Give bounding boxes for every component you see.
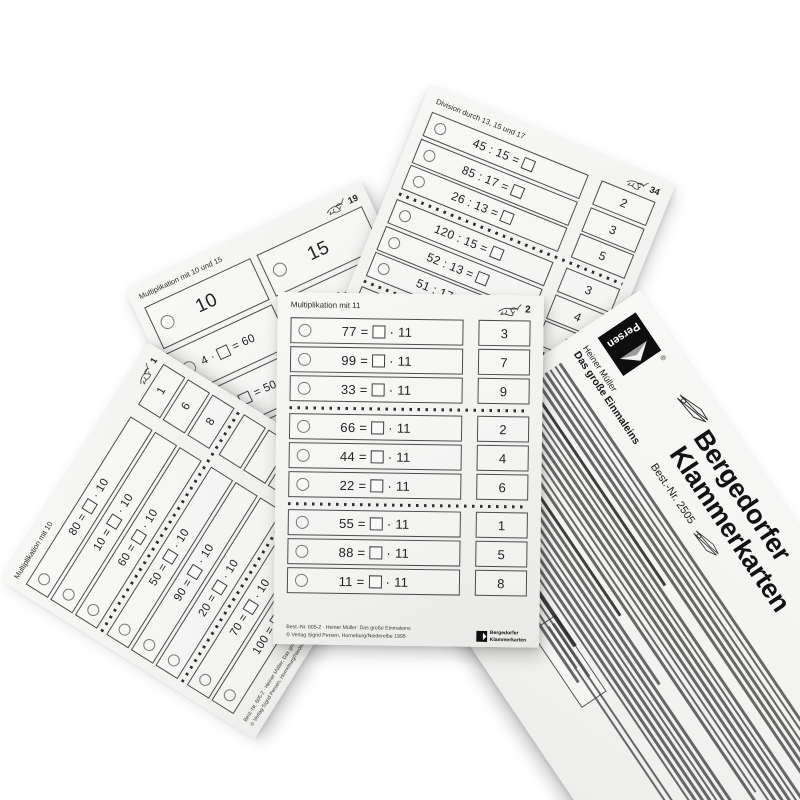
answer-box-blank xyxy=(369,575,382,588)
problem-cell: 44 =· 11 xyxy=(289,442,462,470)
card-row: 99 =· 117 xyxy=(290,346,530,375)
clip-hole-circle xyxy=(297,420,310,433)
problem-text: 10 xyxy=(192,289,221,318)
answer-box-blank xyxy=(216,344,232,360)
problem-text: · 11 xyxy=(386,545,409,560)
problem-text: 88 = xyxy=(339,544,366,559)
answer-box-blank xyxy=(521,157,537,173)
problem-text: 15 xyxy=(304,237,333,266)
problem-text: · 11 xyxy=(385,574,408,589)
answer-box-blank xyxy=(162,548,179,565)
answer-value: 9 xyxy=(500,384,508,399)
answer-box-blank xyxy=(211,579,228,596)
clip-hole-circle xyxy=(296,478,309,491)
problem-text: · 10 xyxy=(171,527,192,551)
answer-box-blank xyxy=(371,450,384,463)
clip-hole-circle xyxy=(166,652,183,669)
problem-text: 11 = xyxy=(339,573,365,588)
problem-text: · 11 xyxy=(389,353,412,368)
problem-text: 70 = xyxy=(228,612,251,639)
clip-hole-circle xyxy=(298,353,311,366)
card-number: 34 xyxy=(648,184,661,197)
card-multiplikation-mit-11: Multiplikation mit 11 2 77 =· 11399 =· 1… xyxy=(273,292,544,648)
problem-text: · 11 xyxy=(389,382,412,397)
problem-text: 33 = xyxy=(341,381,368,396)
card-footer: Best.-Nr. 605-2 · Heiner Müller: Das gro… xyxy=(286,625,526,644)
clip-hole-circle xyxy=(85,602,102,619)
answer-value: 5 xyxy=(497,547,505,562)
row-group: 55 =· 11188 =· 11511 =· 118 xyxy=(287,509,528,596)
card-row: 55 =· 111 xyxy=(288,509,528,538)
answer-box-blank xyxy=(369,546,382,559)
problem-text: 66 = xyxy=(340,419,367,434)
answer-value: 7 xyxy=(500,355,508,370)
brand-line2: Klammerkarten xyxy=(490,636,526,643)
problem-text: · 10 xyxy=(115,492,136,516)
card-title: Multiplikation mit 11 xyxy=(291,300,361,310)
clip-hole-circle xyxy=(296,516,309,529)
row-group: 66 =· 11244 =· 11422 =· 116 xyxy=(288,413,529,500)
answer-cell: 8 xyxy=(475,570,527,597)
answer-value: 3 xyxy=(583,283,595,299)
card-row: 11 =· 118 xyxy=(287,567,527,596)
problem-text: · 11 xyxy=(388,449,411,464)
clip-hole-circle xyxy=(60,586,77,603)
problem-text: · 10 xyxy=(139,507,160,531)
answer-box-blank xyxy=(371,421,384,434)
answer-value: 6 xyxy=(498,480,506,495)
answer-box-blank xyxy=(82,498,99,515)
answer-value: 3 xyxy=(501,326,509,341)
dotted-separator xyxy=(289,406,529,412)
card-header: Multiplikation mit 11 2 xyxy=(278,292,544,321)
card-number: 19 xyxy=(346,193,359,206)
clip-hole-circle xyxy=(297,449,310,462)
clip-hole-circle xyxy=(295,574,308,587)
problem-text: 22 = xyxy=(339,477,366,492)
problem-text: 80 = xyxy=(67,511,90,538)
answer-cell: 3 xyxy=(478,320,530,347)
clip-hole-circle xyxy=(298,324,311,337)
problem-text: 10 = xyxy=(91,527,114,554)
answer-cell: 1 xyxy=(476,512,528,539)
problem-text: 50 = xyxy=(147,562,170,589)
clip-hole-circle xyxy=(36,571,53,588)
footer-imprint-line2: © Verlag Sigrid Persen, Horneburg/Nieder… xyxy=(286,632,410,642)
clip-hole-circle xyxy=(158,313,177,332)
grasshopper-logo-icon xyxy=(496,303,522,316)
clip-hole-circle xyxy=(141,637,158,654)
answer-box-blank xyxy=(500,210,516,226)
answer-value: 1 xyxy=(155,385,169,397)
answer-cell: 2 xyxy=(477,416,529,443)
clip-hole-circle xyxy=(422,148,438,164)
answer-box-blank xyxy=(372,383,385,396)
answer-value: 4 xyxy=(572,309,584,325)
card-row: 44 =· 114 xyxy=(289,442,529,471)
card-row: 88 =· 115 xyxy=(287,538,527,567)
answer-value: 2 xyxy=(499,422,507,437)
problem-text: · 10 xyxy=(195,542,216,566)
problem-text: · 10 xyxy=(220,558,241,582)
clip-hole-circle xyxy=(411,174,427,190)
problem-text: 77 = xyxy=(342,323,369,338)
answer-cell: 6 xyxy=(476,474,528,501)
problem-text: · 11 xyxy=(389,324,412,339)
problem-text: 20 = xyxy=(197,592,220,619)
card-row: 77 =· 113 xyxy=(290,317,530,346)
clip-hole-circle xyxy=(222,687,239,704)
card-row: 66 =· 112 xyxy=(289,413,529,442)
problem-text: 90 = xyxy=(172,577,195,604)
problem-text: · 10 xyxy=(90,476,111,500)
answer-cell: 7 xyxy=(478,349,530,376)
answer-value: 1 xyxy=(498,518,506,533)
problem-text: 4 · xyxy=(199,351,217,368)
answer-box-blank xyxy=(131,528,148,545)
answer-box-blank xyxy=(489,245,505,261)
answer-value: 6 xyxy=(179,400,193,412)
problem-text: 60 = xyxy=(116,542,139,569)
problem-text: 44 = xyxy=(340,448,367,463)
problem-cell: 88 =· 11 xyxy=(287,538,460,566)
answer-box-blank xyxy=(372,325,385,338)
clip-hole-circle xyxy=(432,121,448,137)
dotted-separator xyxy=(288,502,528,508)
problem-text: · 11 xyxy=(387,478,410,493)
problem-cell: 11 =· 11 xyxy=(287,567,460,595)
problem-cell: 66 =· 11 xyxy=(289,413,462,441)
clip-hole-circle xyxy=(376,261,392,277)
problem-cell: 77 =· 11 xyxy=(290,317,463,345)
problem-text: 55 = xyxy=(339,515,366,530)
problem-cell: 22 =· 11 xyxy=(288,471,461,499)
answer-value: 8 xyxy=(204,416,218,428)
answer-cell: 5 xyxy=(475,541,527,568)
row-group: 77 =· 11399 =· 11733 =· 119 xyxy=(289,317,530,404)
persen-mini-logo xyxy=(476,631,487,642)
answer-value: 3 xyxy=(607,222,619,238)
clip-hole-circle xyxy=(387,235,403,251)
clip-hole-circle xyxy=(298,382,311,395)
answer-cell: 9 xyxy=(477,378,529,405)
registered-trademark: ® xyxy=(658,354,667,362)
answer-box-blank xyxy=(475,271,491,287)
card-row: 33 =· 119 xyxy=(289,375,529,404)
problem-text: 99 = xyxy=(341,352,368,367)
clip-hole-circle xyxy=(197,672,214,689)
answer-box-blank xyxy=(370,517,383,530)
clip-hole-circle xyxy=(116,621,133,638)
problem-cell: 99 =· 11 xyxy=(290,346,463,374)
answer-box-blank xyxy=(510,183,526,199)
answer-value: 4 xyxy=(499,451,507,466)
problem-text: · 11 xyxy=(388,420,411,435)
card-row: 22 =· 116 xyxy=(288,471,528,500)
answer-box-blank xyxy=(187,563,204,580)
persen-logo: Persen xyxy=(598,312,662,376)
card-corner: 2 xyxy=(496,303,531,316)
problem-text: = 50 xyxy=(252,378,279,399)
card-body: 77 =· 11399 =· 11733 =· 11966 =· 11244 =… xyxy=(274,317,544,597)
problem-text: · 11 xyxy=(387,516,410,531)
problem-text: · 10 xyxy=(251,577,272,601)
answer-value: 2 xyxy=(618,195,630,211)
card-number: 2 xyxy=(525,304,531,315)
clip-hole-circle xyxy=(295,545,308,558)
clip-hole-circle xyxy=(397,208,413,224)
answer-box-blank xyxy=(106,513,123,530)
answer-box-blank xyxy=(370,479,383,492)
answer-value: 5 xyxy=(597,248,609,264)
answer-box-blank xyxy=(372,354,385,367)
clip-hole-circle xyxy=(270,261,289,280)
problem-text: = 60 xyxy=(230,332,257,353)
problem-cell: 33 =· 11 xyxy=(289,375,462,403)
photo-stage: Multiplikation mit 10 und 15 19 10154 ·=… xyxy=(0,0,800,800)
problem-cell: 55 =· 11 xyxy=(288,509,461,537)
answer-value: 8 xyxy=(497,576,505,591)
answer-cell: 4 xyxy=(477,445,529,472)
answer-box-blank xyxy=(243,598,260,615)
